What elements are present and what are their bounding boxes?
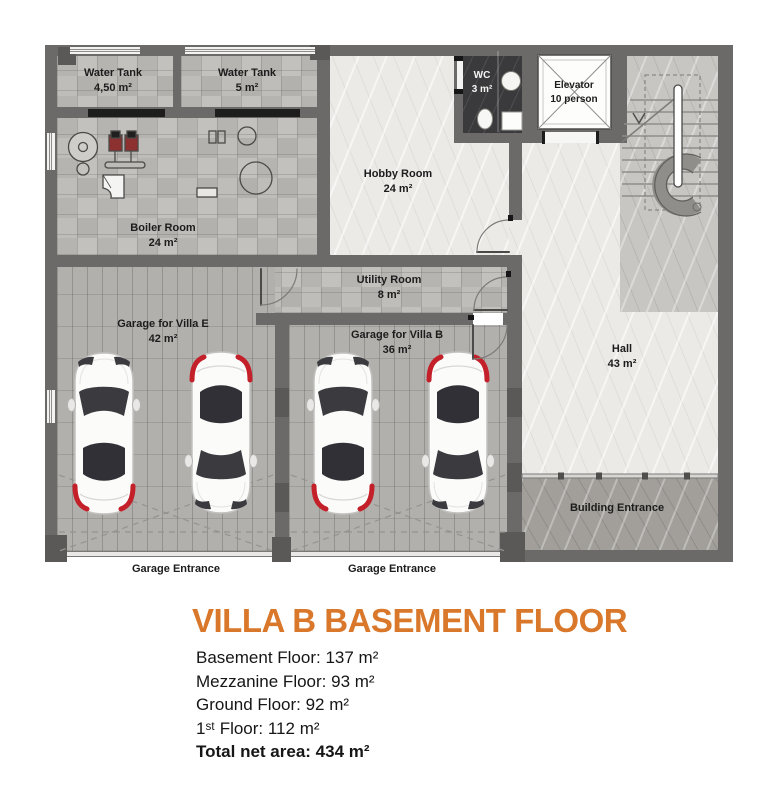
room-name: Hobby Room — [364, 167, 432, 182]
summary-line-basement: Basement Floor: 137 m² — [196, 646, 378, 670]
garage-entrance-label-left: Garage Entrance — [132, 563, 220, 575]
room-label-elevator: Elevator 10 person — [550, 79, 597, 107]
car-garage-e-left — [68, 353, 141, 514]
room-area: 24 m² — [364, 182, 432, 197]
summary-line-first: 1ˢᵗ Floor: 112 m² — [196, 717, 378, 741]
room-area: 3 m² — [472, 83, 493, 97]
room-area: 8 m² — [357, 288, 422, 303]
wc-shower-tray — [502, 112, 522, 130]
summary-line-ground: Ground Floor: 92 m² — [196, 693, 378, 717]
room-name: Garage for Villa B — [351, 328, 443, 343]
door-utility-right — [474, 271, 511, 310]
wc-sink — [502, 72, 521, 91]
floor-plan: Water Tank 4,50 m² Water Tank 5 m² Boile… — [45, 45, 733, 562]
room-name: Building Entrance — [570, 501, 664, 516]
boiler-equipment — [69, 127, 273, 198]
room-area: 5 m² — [218, 81, 276, 96]
door-wc — [454, 56, 463, 94]
door-hobby-hall — [477, 215, 513, 252]
room-name: Utility Room — [357, 273, 422, 288]
room-area: 4,50 m² — [84, 81, 142, 96]
elevator-door — [544, 132, 598, 143]
stair-rail — [674, 85, 682, 187]
area-summary: Basement Floor: 137 m² Mezzanine Floor: … — [196, 646, 378, 764]
car-garage-b-right — [422, 352, 495, 513]
stair-direction-arrow — [633, 113, 645, 123]
room-label-utility: Utility Room 8 m² — [357, 273, 422, 303]
room-area: 43 m² — [608, 357, 637, 372]
staircase — [622, 75, 718, 216]
car-garage-e-right — [185, 352, 258, 513]
room-label-water-tank-1: Water Tank 4,50 m² — [84, 66, 142, 96]
room-name: Boiler Room — [130, 221, 195, 236]
room-name: Elevator — [550, 79, 597, 93]
room-name: WC — [472, 69, 493, 83]
room-area: 36 m² — [351, 343, 443, 358]
room-capacity: 10 person — [550, 93, 597, 107]
door-garage-b — [468, 315, 507, 359]
building-entrance-glass — [522, 473, 718, 480]
room-name: Hall — [608, 342, 637, 357]
plan-linework — [45, 45, 733, 562]
room-name: Water Tank — [218, 66, 276, 81]
page-title: VILLA B BASEMENT FLOOR — [192, 602, 627, 640]
room-label-wc: WC 3 m² — [472, 69, 493, 97]
garage-entrance-label-right: Garage Entrance — [348, 563, 436, 575]
doors — [261, 56, 513, 359]
page: Water Tank 4,50 m² Water Tank 5 m² Boile… — [0, 0, 779, 800]
room-label-hobby: Hobby Room 24 m² — [364, 167, 432, 197]
room-label-garage-b: Garage for Villa B 36 m² — [351, 328, 443, 358]
room-label-building-entrance: Building Entrance — [570, 501, 664, 516]
room-area: 42 m² — [117, 332, 209, 347]
wc-toilet — [478, 109, 493, 129]
door-utility-left — [261, 269, 297, 305]
car-garage-b-left — [307, 353, 380, 514]
room-label-boiler: Boiler Room 24 m² — [130, 221, 195, 251]
room-label-hall: Hall 43 m² — [608, 342, 637, 372]
room-name: Water Tank — [84, 66, 142, 81]
summary-line-mezzanine: Mezzanine Floor: 93 m² — [196, 670, 378, 694]
room-label-garage-e: Garage for Villa E 42 m² — [117, 317, 209, 347]
room-name: Garage for Villa E — [117, 317, 209, 332]
room-label-water-tank-2: Water Tank 5 m² — [218, 66, 276, 96]
room-area: 24 m² — [130, 236, 195, 251]
summary-total: Total net area: 434 m² — [196, 740, 378, 764]
